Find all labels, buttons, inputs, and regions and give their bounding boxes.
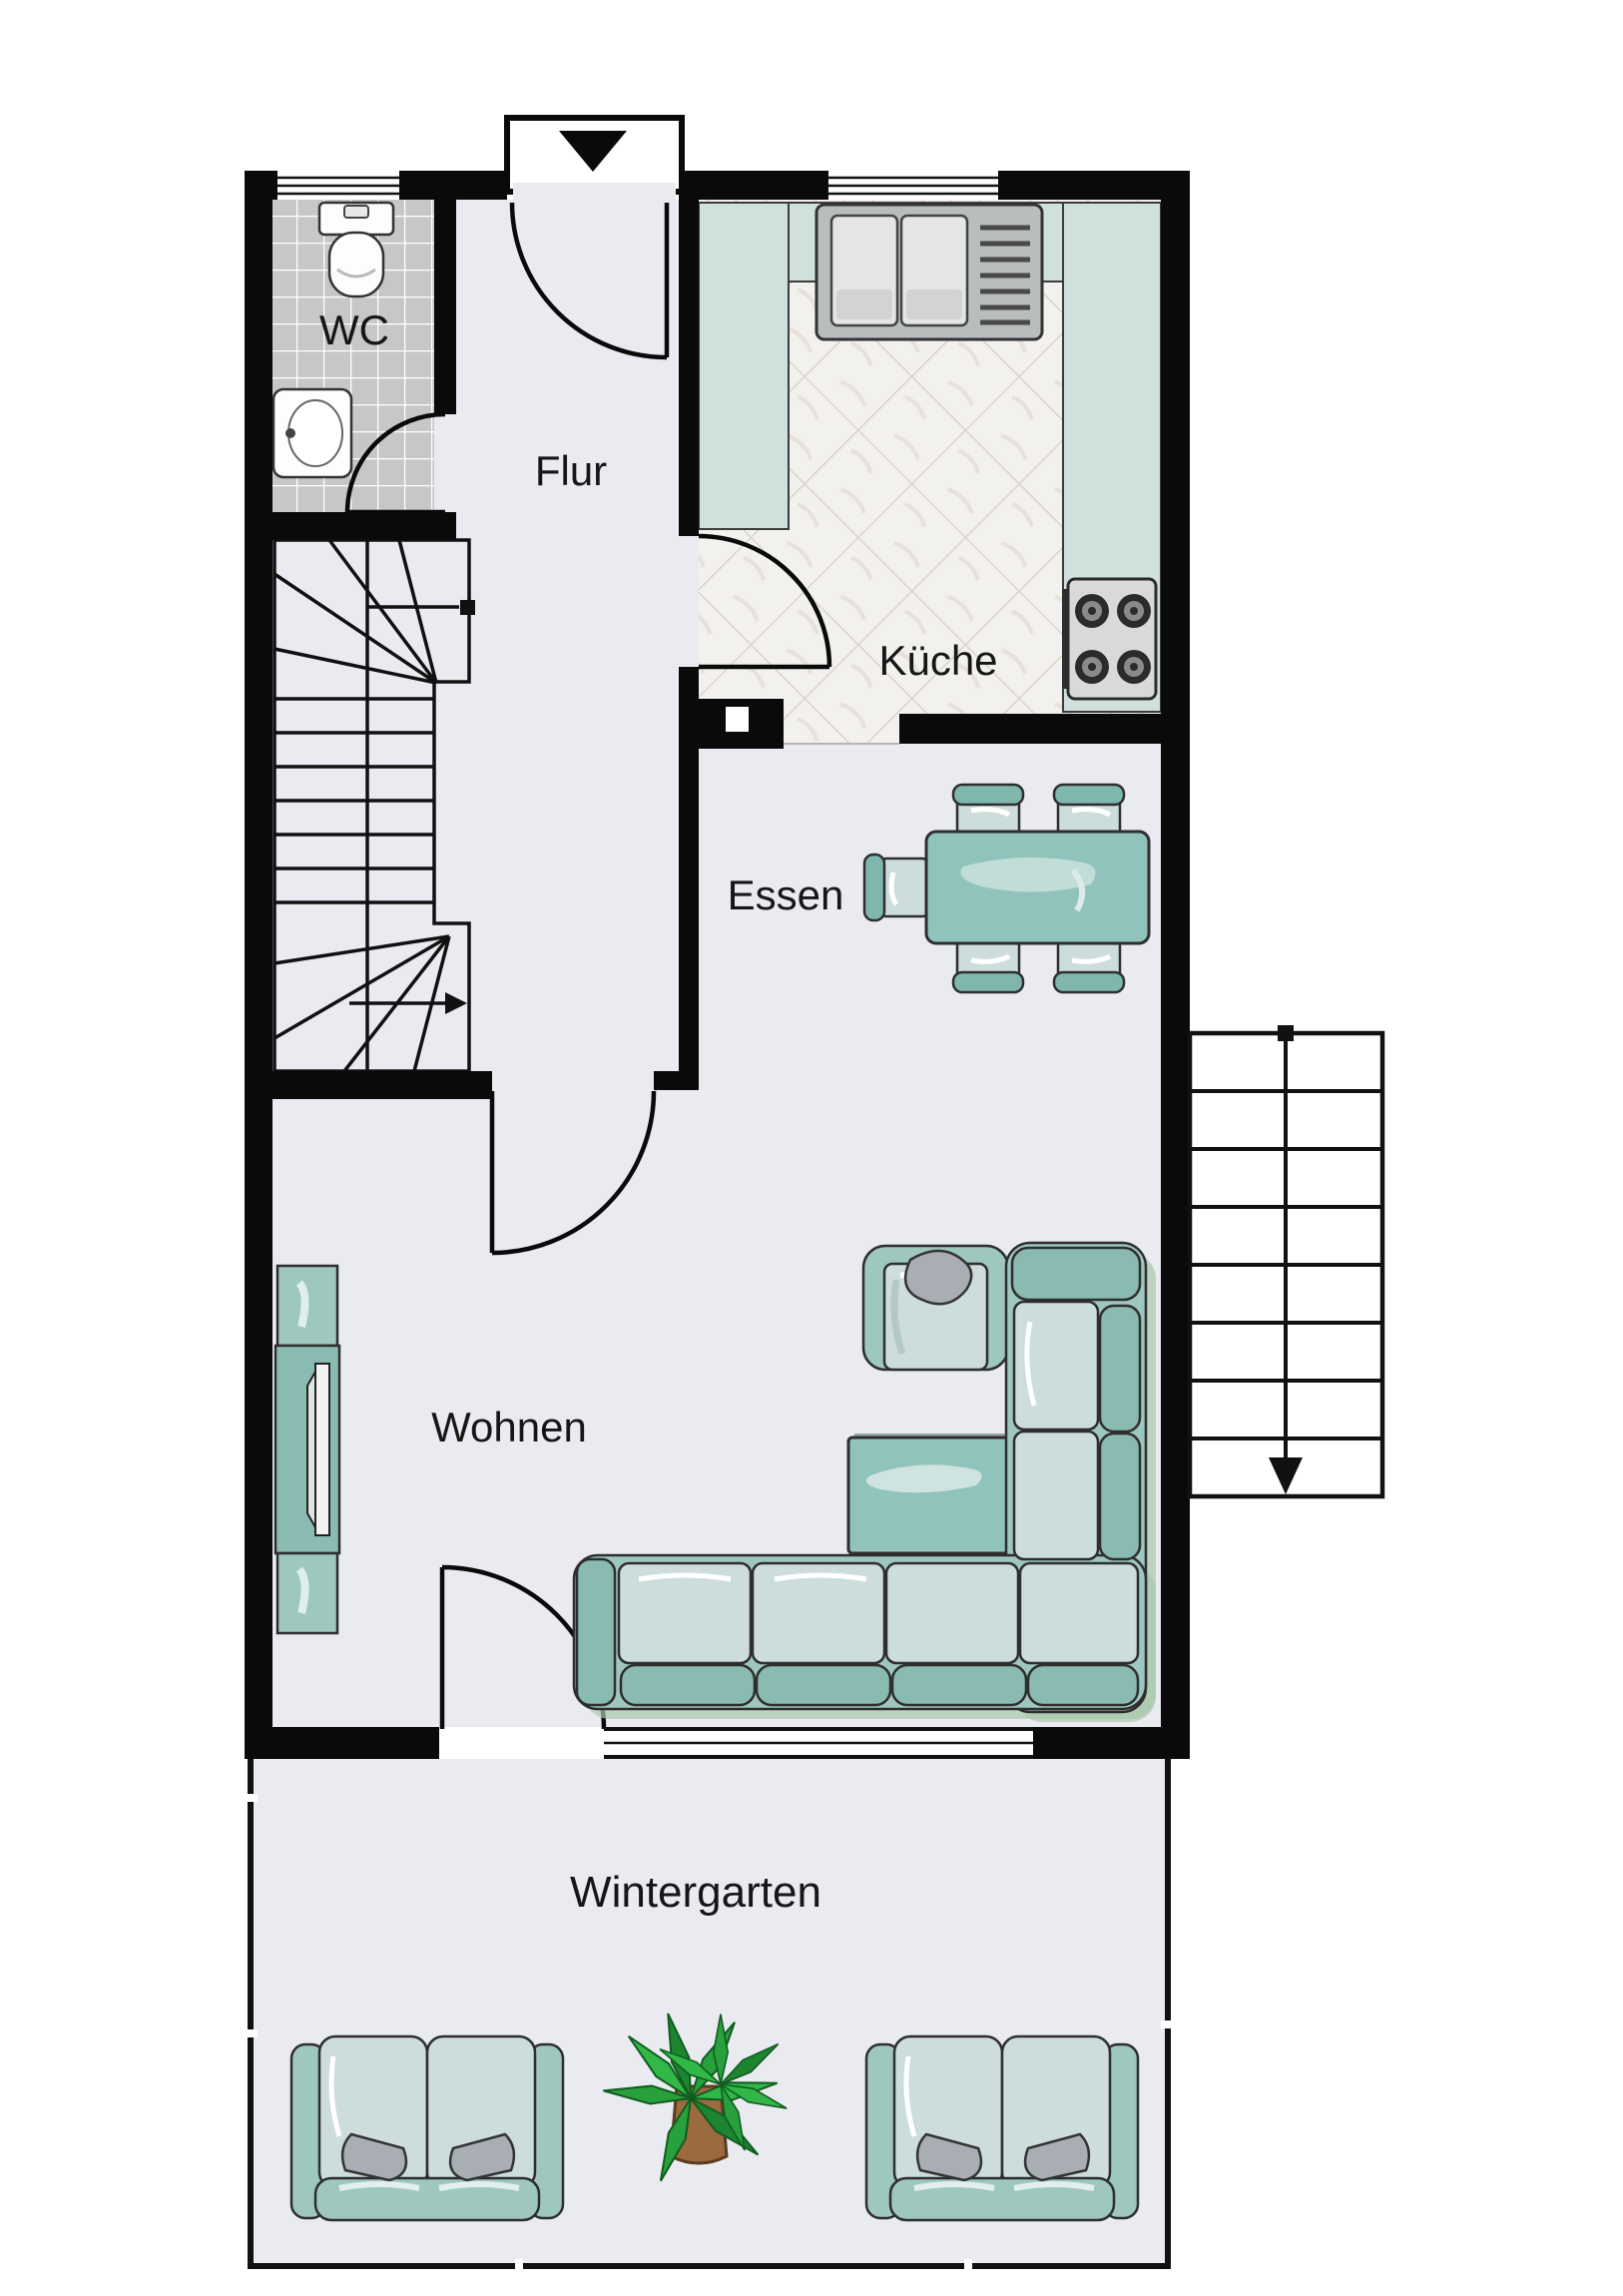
room-label-kueche: Küche bbox=[878, 637, 997, 684]
floorplan-page: WC Flur Küche Essen Wohnen Wintergarten bbox=[0, 0, 1623, 2296]
stair-cut-marker bbox=[460, 600, 475, 615]
room-label-wohnen: Wohnen bbox=[431, 1404, 587, 1450]
kitchen-sink-icon bbox=[816, 205, 1042, 339]
floorplan-canvas: WC Flur Küche Essen Wohnen Wintergarten bbox=[0, 0, 1623, 2296]
room-label-flur: Flur bbox=[535, 447, 607, 494]
chair-icon bbox=[864, 855, 928, 920]
tv-sideboard-icon bbox=[275, 1266, 339, 1633]
sofa-icon bbox=[866, 2036, 1138, 2220]
chimney-flue-icon bbox=[726, 707, 749, 732]
entrance bbox=[507, 118, 682, 203]
kitchen-window bbox=[828, 171, 998, 200]
exterior-staircase-icon bbox=[1190, 1025, 1382, 1496]
armchair-icon bbox=[863, 1246, 1029, 1370]
stove-icon bbox=[1062, 579, 1156, 699]
dining-table-icon bbox=[926, 832, 1149, 943]
sliding-window bbox=[604, 1727, 1033, 1759]
sofa-icon bbox=[291, 2036, 563, 2220]
wash-basin-icon bbox=[273, 389, 351, 477]
toilet-icon bbox=[319, 203, 393, 296]
coffee-table-icon bbox=[848, 1434, 1014, 1553]
wc-window bbox=[277, 171, 399, 200]
room-label-wc: WC bbox=[319, 306, 389, 353]
room-label-wintergarten: Wintergarten bbox=[570, 1868, 821, 1917]
room-label-essen: Essen bbox=[728, 871, 844, 918]
